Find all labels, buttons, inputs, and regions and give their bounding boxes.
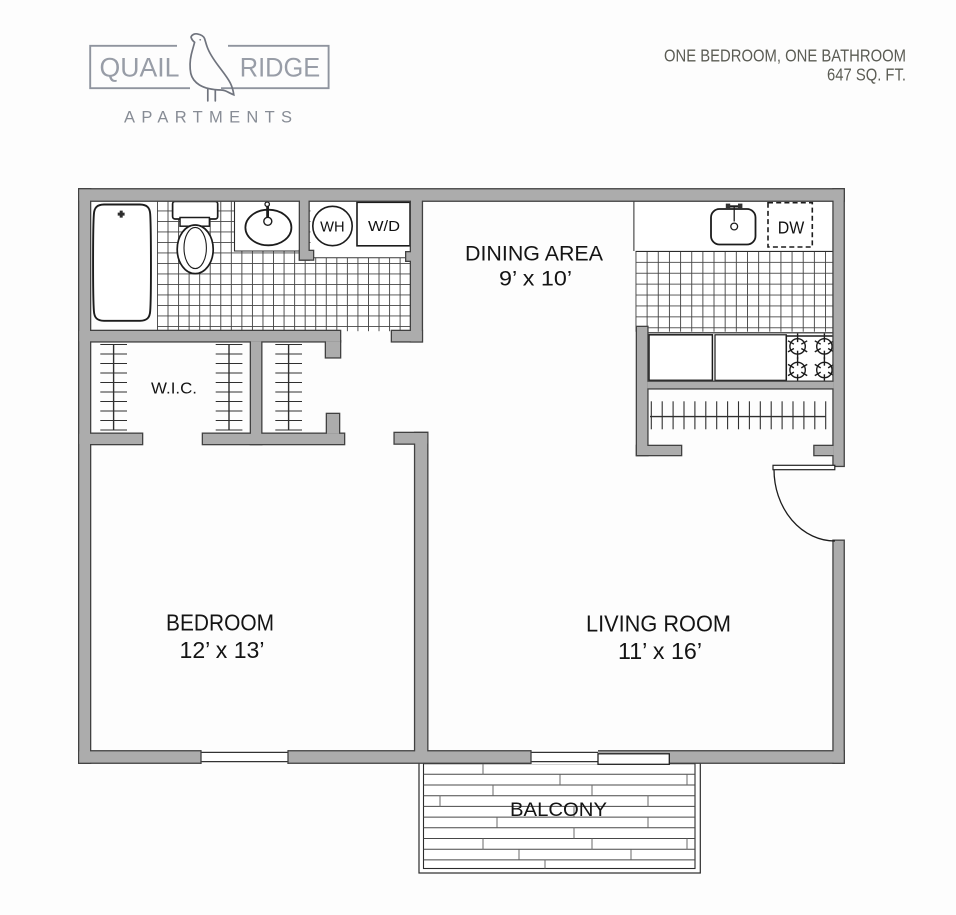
svg-text:W.I.C.: W.I.C. bbox=[151, 380, 197, 397]
svg-text:9’ x 10’: 9’ x 10’ bbox=[499, 266, 572, 290]
svg-text:LIVING ROOM: LIVING ROOM bbox=[586, 611, 731, 637]
svg-text:12’ x 13’: 12’ x 13’ bbox=[180, 637, 265, 663]
svg-text:DW: DW bbox=[778, 218, 805, 238]
svg-text:647 SQ. FT.: 647 SQ. FT. bbox=[827, 65, 906, 85]
svg-text:RIDGE: RIDGE bbox=[240, 53, 321, 83]
svg-text:ONE BEDROOM, ONE BATHROOM: ONE BEDROOM, ONE BATHROOM bbox=[664, 46, 906, 66]
svg-text:APARTMENTS: APARTMENTS bbox=[124, 108, 297, 126]
svg-text:WH: WH bbox=[320, 219, 345, 236]
svg-text:DINING AREA: DINING AREA bbox=[465, 241, 604, 265]
svg-text:11’ x 16’: 11’ x 16’ bbox=[618, 638, 702, 664]
svg-text:QUAIL: QUAIL bbox=[100, 53, 180, 83]
svg-text:BALCONY: BALCONY bbox=[510, 799, 607, 821]
svg-text:W/D: W/D bbox=[368, 218, 400, 235]
svg-text:BEDROOM: BEDROOM bbox=[166, 610, 274, 636]
